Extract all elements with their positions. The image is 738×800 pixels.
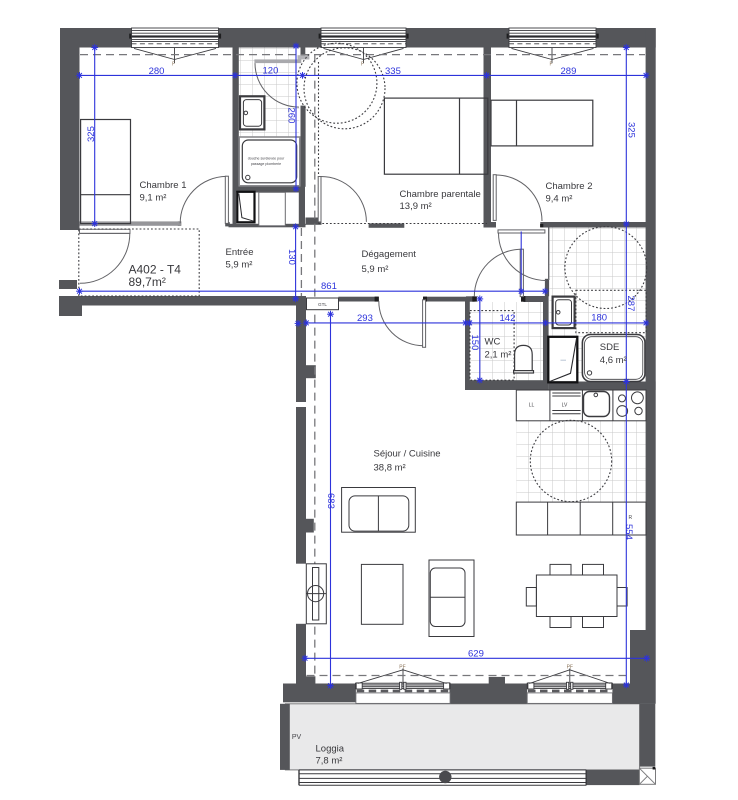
svg-text:douche surélevée pour: douche surélevée pour xyxy=(248,157,285,161)
svg-text:GTL: GTL xyxy=(318,302,327,307)
svg-text:7,8 m²: 7,8 m² xyxy=(316,756,343,767)
svg-text:LL: LL xyxy=(529,403,535,409)
svg-text:passage plomberie: passage plomberie xyxy=(251,162,281,166)
svg-text:260: 260 xyxy=(286,108,297,124)
svg-text:R: R xyxy=(629,515,633,521)
svg-text:629: 629 xyxy=(468,648,484,659)
svg-text:Loggia: Loggia xyxy=(316,744,345,755)
svg-text:142: 142 xyxy=(500,313,516,324)
svg-text:F: F xyxy=(361,61,364,67)
svg-text:Séjour / Cuisine: Séjour / Cuisine xyxy=(374,449,441,460)
svg-text:89,7m²: 89,7m² xyxy=(129,275,166,289)
svg-text:Dégagement: Dégagement xyxy=(362,249,417,260)
svg-text:F: F xyxy=(172,61,175,67)
svg-text:325: 325 xyxy=(86,126,97,142)
svg-text:38,8 m²: 38,8 m² xyxy=(374,463,406,474)
svg-text:9,1 m²: 9,1 m² xyxy=(140,193,167,204)
svg-text:120: 120 xyxy=(263,66,279,77)
svg-text:861: 861 xyxy=(321,281,337,292)
svg-text:280: 280 xyxy=(149,66,165,77)
svg-text:5,9 m²: 5,9 m² xyxy=(362,264,389,275)
svg-text:289: 289 xyxy=(561,66,577,77)
svg-text:Chambre parentale: Chambre parentale xyxy=(400,189,481,200)
svg-text:325: 325 xyxy=(625,122,636,138)
svg-text:150: 150 xyxy=(469,335,480,351)
svg-text:WC: WC xyxy=(485,337,501,348)
svg-text:9,4 m²: 9,4 m² xyxy=(546,194,573,205)
svg-text:F: F xyxy=(550,61,553,67)
svg-text:683: 683 xyxy=(325,493,336,509)
svg-text:5,9 m²: 5,9 m² xyxy=(226,260,253,271)
svg-text:335: 335 xyxy=(385,66,401,77)
svg-text:293: 293 xyxy=(357,313,373,324)
svg-text:LV: LV xyxy=(562,403,568,409)
svg-text:PF: PF xyxy=(567,664,573,670)
svg-text:Chambre 2: Chambre 2 xyxy=(546,181,593,192)
svg-text:4,6 m²: 4,6 m² xyxy=(600,355,627,366)
svg-text:SDE: SDE xyxy=(600,342,620,353)
svg-text:Chambre 1: Chambre 1 xyxy=(140,180,187,191)
svg-text:554: 554 xyxy=(623,524,634,540)
svg-text:287: 287 xyxy=(625,296,636,312)
svg-text:PF: PF xyxy=(399,664,405,670)
svg-text:2,1 m²: 2,1 m² xyxy=(485,350,512,361)
svg-text:180: 180 xyxy=(591,313,607,324)
svg-text:130: 130 xyxy=(286,249,297,265)
svg-text:13,9 m²: 13,9 m² xyxy=(400,201,432,212)
svg-text:PV: PV xyxy=(292,734,302,741)
svg-text:Entrée: Entrée xyxy=(226,247,254,258)
